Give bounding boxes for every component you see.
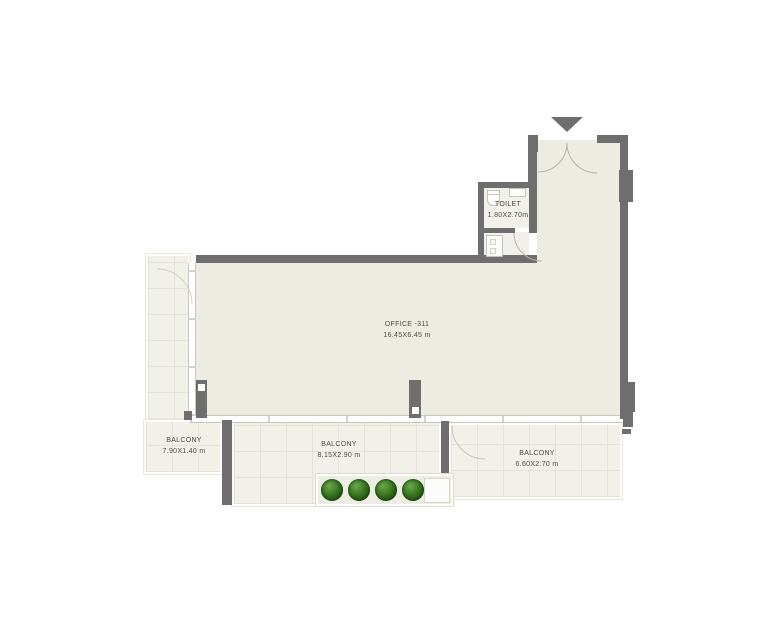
floor-plan-canvas: OFFICE -311 16.45X6.45 m TOILET 1.80X2.7… [0,0,780,640]
balcony-right-dims: 6.60X2.70 m [516,460,559,471]
balcony-left-label: BALCONY 7.90X1.40 m [163,436,206,458]
balcony-middle-dims: 8.15X2.90 m [318,451,361,462]
balcony-left-strip [146,254,190,421]
plant-icon [321,479,343,501]
toilet-label: TOILET 1.80X2.70m [488,200,529,222]
wall-balcony-divider-1 [222,420,232,505]
wall-corridor-left [528,150,537,183]
basin-detail [490,248,496,254]
office-label: OFFICE -311 16.45X6.45 m [383,320,430,342]
plant-icon [348,479,370,501]
wall-band-left-stub [184,411,192,420]
wall-toilet-divider [484,228,515,233]
balcony-left-dims: 7.90X1.40 m [163,447,206,458]
balcony-right-label: BALCONY 6.60X2.70 m [516,449,559,471]
balcony-middle-label: BALCONY 8.15X2.90 m [318,440,361,462]
toilet-cistern-icon [487,190,500,195]
entry-arrow-icon [551,117,583,132]
column-notch [412,407,419,414]
office-dims: 16.45X6.45 m [383,331,430,342]
planter-empty-box [424,478,450,503]
column-notch [198,384,205,391]
plant-icon [375,479,397,501]
wall-balcony-right-stub [622,429,631,434]
balcony-left-name: BALCONY [166,436,202,447]
planter-plants [321,479,424,501]
column-right-upper [619,170,633,202]
toilet-dims: 1.80X2.70m [488,211,529,222]
toilet-name: TOILET [495,200,521,211]
office-name: OFFICE -311 [385,320,429,331]
wall-right-lower-stub [623,412,633,427]
wall-balcony-divider-2 [441,421,449,478]
column-right-lower [621,382,635,412]
toilet-sink-icon [509,188,526,197]
balcony-right-name: BALCONY [519,449,555,460]
entry-corridor-floor [537,140,620,263]
wall-toilet-left [478,182,484,261]
window-band-left [188,263,196,416]
wall-toilet-right [529,182,537,233]
balcony-middle-name: BALCONY [321,440,357,451]
basin-detail [490,239,496,245]
window-band-bottom [190,415,623,423]
plant-icon [402,479,424,501]
